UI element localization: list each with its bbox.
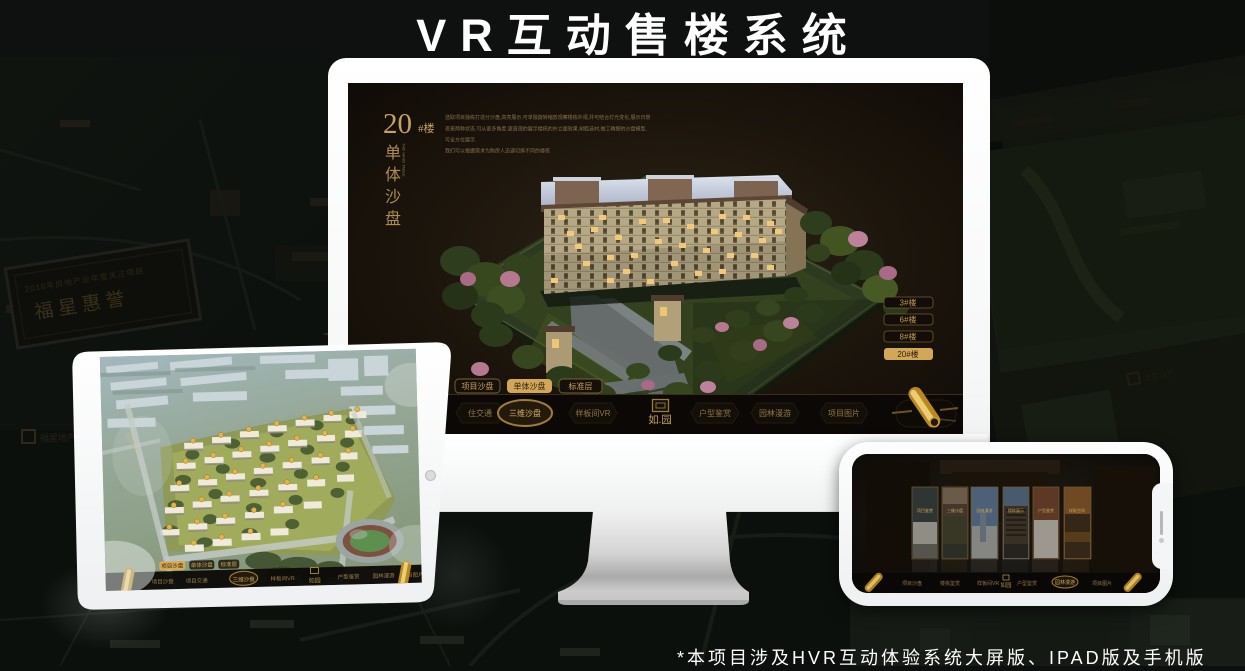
svg-text:楼栋展示: 楼栋展示 [1008, 507, 1024, 513]
svg-text:园林漫游: 园林漫游 [977, 507, 993, 513]
svg-text:项目沙盘: 项目沙盘 [902, 580, 922, 587]
svg-text:样板间VR: 样板间VR [977, 580, 999, 587]
svg-text:三维沙盘: 三维沙盘 [947, 507, 963, 513]
svg-text:项目鉴赏: 项目鉴赏 [917, 507, 933, 513]
svg-text:楼栋鉴赏: 楼栋鉴赏 [940, 580, 960, 587]
svg-text:户型鉴赏: 户型鉴赏 [1017, 580, 1037, 587]
svg-text:样板空间: 样板空间 [1069, 507, 1085, 513]
svg-text:户型鉴赏: 户型鉴赏 [1038, 507, 1054, 513]
svg-text:如园: 如园 [1000, 581, 1012, 589]
svg-text:项目图片: 项目图片 [1092, 580, 1112, 587]
svg-text:园林漫游: 园林漫游 [1055, 579, 1075, 586]
